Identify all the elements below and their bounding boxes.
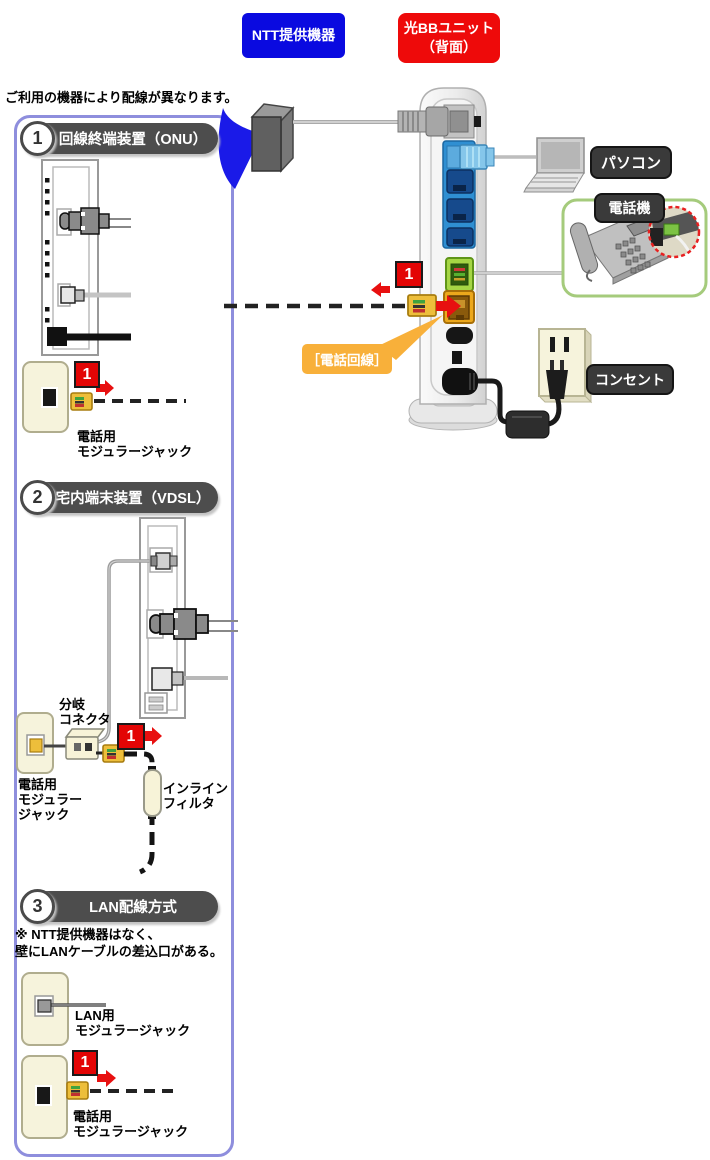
laptop-illustration (524, 138, 584, 192)
tel-port (446, 258, 563, 291)
step-marker-main: 1 (395, 261, 423, 288)
lan-jack-label: LAN用 モジュラージャック (75, 1008, 190, 1038)
lan-note: ※ NTT提供機器はなく、 壁にLANケーブルの差込口がある。 (15, 926, 223, 960)
bb-unit-tag: 光BBユニット （背面） (398, 13, 500, 63)
jack-label-1-line2: モジュラージャック (77, 444, 192, 459)
jack-label-3: 電話用 モジュラージャック (73, 1109, 188, 1139)
jack-label-3-line2: モジュラージャック (73, 1124, 188, 1139)
jack-label-1-line1: 電話用 (77, 429, 192, 444)
branch-label-line2: コネクタ (59, 712, 110, 727)
jack-label-2-line2: モジュラー (18, 792, 82, 807)
yellow-plug-3 (67, 1082, 88, 1099)
lan-cable-plug (460, 145, 536, 169)
section2-number: 2 (20, 480, 55, 515)
section3-header: 3 LAN配線方式 (22, 891, 218, 922)
lan-note-line1: ※ NTT提供機器はなく、 (15, 926, 223, 943)
ntt-equipment-label: NTT提供機器 (252, 26, 335, 45)
red-arrow-left (371, 282, 390, 297)
jack-label-2: 電話用 モジュラー ジャック (18, 777, 82, 822)
inline-filter (124, 754, 161, 872)
lan-jack-label-line2: モジュラージャック (75, 1023, 190, 1038)
jack-label-1: 電話用 モジュラージャック (77, 429, 192, 459)
jack-label-2-line3: ジャック (18, 807, 82, 822)
section1-number: 1 (20, 121, 55, 156)
lan-ports (447, 170, 473, 246)
red-arrow-3 (97, 1070, 116, 1087)
vdsl-illustration (92, 518, 238, 742)
phone-line-callout: ［電話回線］ (302, 344, 392, 374)
wall-jack-4 (22, 1056, 67, 1138)
outlet-label: コンセント (586, 364, 674, 395)
lan-jack-label-line1: LAN用 (75, 1008, 190, 1023)
wan-port (398, 105, 481, 138)
intro-text: ご利用の機器により配線が異なります。 (5, 87, 237, 106)
vdsl-coax-connector (147, 609, 238, 639)
section2-header: 2 宅内端末装置（VDSL） (22, 482, 218, 513)
ntt-device-illustration (252, 104, 400, 171)
vdsl-bottom-plug (145, 668, 228, 713)
red-arrow-2 (143, 727, 162, 745)
phone-label: 電話機 (594, 193, 665, 223)
filter-label-line1: インライン (163, 781, 228, 796)
step-marker-3: 1 (72, 1050, 98, 1076)
filter-label-line2: フィルタ (163, 796, 228, 811)
jack-label-2-line1: 電話用 (18, 777, 82, 792)
bb-unit-label-line1: 光BBユニット (404, 19, 494, 38)
ntt-equipment-tag: NTT提供機器 (242, 13, 345, 58)
pc-label: パソコン (590, 146, 672, 179)
jack-label-3-line1: 電話用 (73, 1109, 188, 1124)
step-marker-2: 1 (117, 723, 145, 750)
onu-coax-connector (57, 208, 131, 235)
branch-label-line1: 分岐 (59, 697, 110, 712)
inline-filter-label: インライン フィルタ (163, 781, 228, 811)
branch-connector (66, 729, 105, 759)
step-marker-1: 1 (74, 361, 100, 388)
section3-number: 3 (20, 889, 55, 924)
diagram-page: NTT提供機器 光BBユニット （背面） ご利用の機器により配線が異なります。 … (0, 0, 710, 1160)
lan-note-line2: 壁にLANケーブルの差込口がある。 (15, 943, 223, 960)
wall-jack-1 (23, 362, 68, 432)
section1-header: 1 回線終端装置（ONU） (22, 123, 218, 154)
bb-unit-label-line2: （背面） (421, 38, 477, 57)
onu-illustration (42, 160, 131, 355)
lan-port-panel (443, 141, 536, 248)
yellow-plug-1 (71, 393, 92, 410)
yellow-plug-main (408, 295, 436, 316)
branch-connector-label: 分岐 コネクタ (59, 697, 110, 727)
ac-adapter (506, 360, 568, 438)
